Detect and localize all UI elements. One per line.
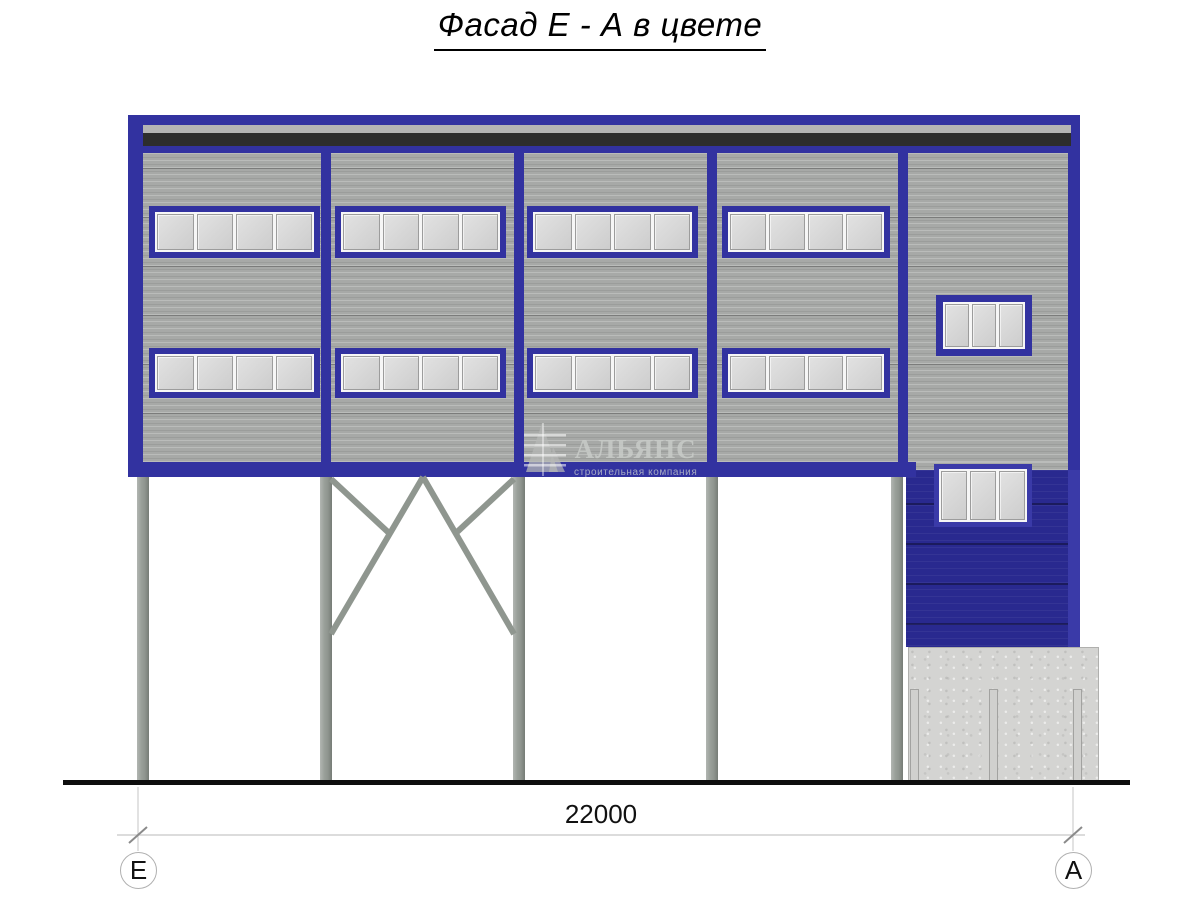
window-strip-row2-bay4	[722, 348, 890, 398]
window-pane	[941, 471, 967, 520]
window-strip-row1-bay4	[722, 206, 890, 258]
window-strip-row2-bay1	[149, 348, 320, 398]
window-pane	[197, 356, 234, 390]
watermark-name: АЛЬЯНС	[575, 436, 697, 463]
window-pane	[157, 356, 194, 390]
axis-marker-a: А	[1055, 852, 1092, 889]
base-trim-band	[128, 462, 916, 477]
window-pane	[999, 304, 1023, 347]
window-frame	[939, 469, 1027, 522]
window-frame	[155, 354, 314, 392]
axis-letter-a: А	[1065, 855, 1082, 886]
window-pane	[846, 356, 882, 390]
window-pane	[276, 356, 313, 390]
window-pane	[157, 214, 194, 250]
window-strip-row1-bay1	[149, 206, 320, 258]
window-strip-row2-bay3	[527, 348, 698, 398]
lower-wall-right-trim	[1068, 470, 1080, 647]
window-pane	[343, 356, 380, 390]
window-pane	[614, 214, 651, 250]
axis-marker-e: Е	[120, 852, 157, 889]
axis-letter-e: Е	[130, 855, 147, 886]
window-pane	[769, 214, 805, 250]
window-pane	[972, 304, 996, 347]
window-pane	[575, 356, 612, 390]
window-pane	[383, 356, 420, 390]
window-frame	[728, 212, 884, 252]
window-pane	[535, 356, 572, 390]
window-strip-row1-bay2	[335, 206, 506, 258]
window-pane	[808, 214, 844, 250]
bay-mullion-1	[321, 153, 331, 462]
window-pane	[970, 471, 996, 520]
foundation-pilaster-2	[989, 689, 998, 781]
facade-drawing: Фасад Е - А в цвете	[0, 0, 1200, 900]
column-5	[891, 477, 903, 781]
window-pane	[575, 214, 612, 250]
brace-diagonal-left-long	[331, 477, 423, 634]
window-pane	[654, 356, 691, 390]
window-frame	[533, 354, 692, 392]
window-pane	[535, 214, 572, 250]
small-window-upper	[936, 295, 1032, 356]
foundation-pilaster-3	[1073, 689, 1082, 781]
drawing-title: Фасад Е - А в цвете	[0, 6, 1200, 51]
corner-trim-right	[1068, 115, 1080, 475]
window-pane	[999, 471, 1025, 520]
window-frame	[155, 212, 314, 252]
window-pane	[614, 356, 651, 390]
column-2	[320, 477, 332, 781]
window-strip-row2-bay2	[335, 348, 506, 398]
window-pane	[343, 214, 380, 250]
window-pane	[730, 356, 766, 390]
column-4	[706, 477, 718, 781]
small-window-lower	[934, 464, 1032, 527]
window-pane	[422, 214, 459, 250]
window-pane	[846, 214, 882, 250]
brace-diagonal-right-long	[423, 477, 514, 634]
window-pane	[197, 214, 234, 250]
window-pane	[808, 356, 844, 390]
dimension-value: 22000	[117, 799, 1085, 830]
watermark-texts: АЛЬЯНС строительная компания	[574, 420, 697, 478]
window-frame	[341, 212, 500, 252]
roof-flashing-dark	[143, 133, 1071, 146]
window-pane	[236, 214, 273, 250]
watermark: АЛЬЯНС строительная компания	[524, 420, 697, 478]
brace-diagonal-left-short	[331, 479, 389, 533]
wall-panels-main	[143, 153, 1068, 462]
foundation-block	[908, 647, 1099, 781]
roof-flashing-light	[143, 125, 1071, 133]
bay-mullion-3	[707, 153, 717, 462]
window-pane	[769, 356, 805, 390]
window-pane	[422, 356, 459, 390]
window-pane	[654, 214, 691, 250]
watermark-subtitle: строительная компания	[574, 467, 697, 478]
column-3	[513, 477, 525, 781]
window-pane	[730, 214, 766, 250]
column-1	[137, 477, 149, 781]
bay-mullion-4	[898, 153, 908, 462]
window-pane	[462, 214, 499, 250]
window-frame	[341, 354, 500, 392]
alliance-logo-icon	[524, 420, 566, 476]
window-pane	[462, 356, 499, 390]
bay-mullion-2	[514, 153, 524, 462]
window-frame	[533, 212, 692, 252]
ground-line	[63, 780, 1130, 785]
window-pane	[276, 214, 313, 250]
drawing-title-text: Фасад Е - А в цвете	[434, 6, 766, 51]
window-pane	[945, 304, 969, 347]
brace-diagonal-right-short	[456, 479, 514, 533]
window-pane	[236, 356, 273, 390]
window-frame	[728, 354, 884, 392]
foundation-pilaster-1	[910, 689, 919, 781]
window-pane	[383, 214, 420, 250]
window-frame	[943, 302, 1025, 349]
window-strip-row1-bay3	[527, 206, 698, 258]
corner-trim-left	[128, 115, 143, 475]
